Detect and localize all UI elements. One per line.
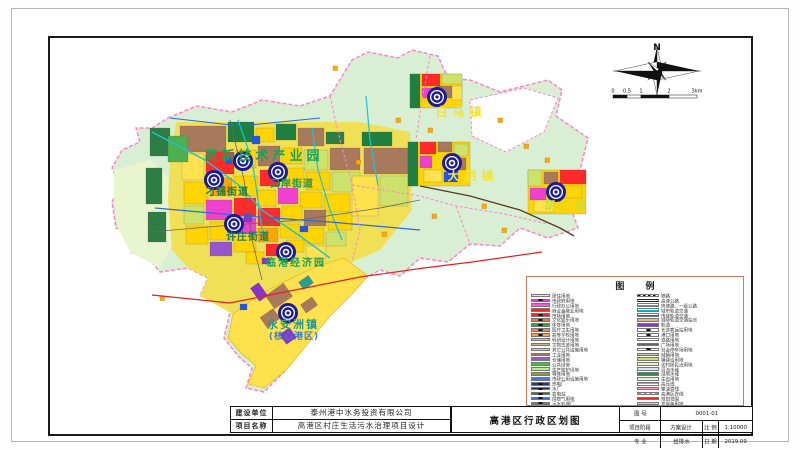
legend-swatch-icon (531, 382, 550, 386)
legend-swatch-icon (531, 343, 550, 347)
scale-label: 比 例 (703, 421, 719, 434)
map-label: 胡庄镇 (545, 198, 590, 212)
legend-swatch-icon (637, 294, 659, 298)
town-marker-icon (226, 216, 243, 233)
map-label: 白马镇 (435, 104, 486, 119)
legend-swatch-icon (531, 348, 550, 352)
specialty-label: 专 业 (620, 435, 661, 448)
map-label: (核心港区) (269, 330, 319, 342)
map-label: 高新技术产业园 (204, 148, 323, 164)
legend-left-column: 居住用地 市政府用地 行政办公用地 商业金融业用地 (529, 293, 635, 406)
town-marker-icon (206, 172, 223, 189)
legend-swatch-icon (531, 402, 550, 406)
legend-swatch-icon (637, 387, 659, 391)
scalebar-tick-label: 1 (639, 89, 642, 95)
legend-swatch-icon (531, 313, 550, 317)
legend-swatch-icon (637, 343, 659, 347)
map-label: 刁铺街道 (205, 185, 249, 198)
legend-swatch-icon (531, 294, 550, 298)
legend-swatch-icon (637, 348, 659, 352)
drawing-title: 高港区行政区划图 (452, 407, 620, 432)
legend-swatch-icon (637, 382, 659, 386)
legend-swatch-icon (637, 323, 659, 327)
legend-swatch-icon (531, 362, 550, 366)
legend-swatch-icon (637, 402, 659, 406)
legend-swatch-icon (637, 303, 659, 307)
drawing-no-label: 图 号 (620, 407, 661, 420)
project-name-value: 高港区村庄生活污水治理项目设计 (273, 420, 451, 433)
legend-swatch-icon (531, 392, 550, 396)
town-marker-icon (270, 164, 287, 181)
map-label: 大泗镇 (447, 168, 498, 183)
date-value: 2019.09 (719, 435, 752, 448)
legend-swatch-icon (637, 299, 659, 303)
legend-swatch-icon (531, 377, 550, 381)
legend-swatch-icon (637, 318, 659, 322)
specialty-value: 给排水 (661, 435, 703, 448)
legend-swatch-icon (531, 303, 550, 307)
map-label: 许庄街道 (226, 230, 270, 243)
title-block-right: 图 号 0001-01 项目阶段 方案设计 比 例 1:10000 专 业 给排… (620, 407, 752, 432)
legend-swatch-icon (637, 357, 659, 361)
scalebar-tick-label: 0.5 (623, 89, 631, 95)
legend-swatch-icon (637, 353, 659, 357)
title-block: 建设单位 泰州港中水务投资有限公司 项目名称 高港区村庄生活污水治理项目设计 高… (230, 406, 753, 433)
phase-value: 方案设计 (661, 421, 703, 434)
legend-swatch-icon (637, 367, 659, 371)
map-label: 口岸街道 (270, 177, 314, 190)
legend-swatch-icon (531, 353, 550, 357)
legend-swatch-icon (531, 299, 550, 303)
legend-swatch-icon (637, 328, 659, 332)
legend-swatch-icon (637, 313, 659, 317)
legend-swatch-icon (637, 377, 659, 381)
map-label: 永安洲镇 (266, 317, 319, 331)
scale-value: 1:10000 (719, 421, 752, 434)
legend-swatch-icon (531, 397, 550, 401)
compass-north-label: N (653, 43, 661, 53)
legend-swatch-icon (637, 362, 659, 366)
legend-swatch-icon (637, 392, 659, 396)
scalebar-tick-label: 3km (692, 89, 703, 95)
project-name-label: 项目名称 (231, 420, 273, 433)
legend-swatch-icon (637, 308, 659, 312)
legend-swatch-icon (637, 333, 659, 337)
construction-unit-label: 建设单位 (231, 407, 273, 420)
legend-swatch-icon (531, 338, 550, 342)
map-label: 临港经济园 (266, 256, 326, 269)
town-marker-icon (429, 89, 446, 106)
phase-label: 项目阶段 (620, 421, 661, 434)
legend-swatch-icon (531, 318, 550, 322)
construction-unit-value: 泰州港中水务投资有限公司 (273, 407, 451, 420)
legend-swatch-icon (637, 372, 659, 376)
legend-swatch-icon (531, 372, 550, 376)
legend-swatch-icon (531, 308, 550, 312)
legend-swatch-icon (637, 338, 659, 342)
legend-title: 图 例 (527, 277, 743, 293)
scalebar-tick-label: 2 (667, 89, 670, 95)
legend-swatch-icon (531, 367, 550, 371)
legend-swatch-icon (531, 357, 550, 361)
legend-swatch-icon (531, 333, 550, 337)
legend-swatch-icon (637, 397, 659, 401)
drawing-page: { "window": {"title": "高港区行政区划图"}, "map"… (0, 0, 800, 450)
legend-swatch-icon (531, 328, 550, 332)
scalebar-tick-label: 0 (611, 89, 614, 95)
legend-swatch-icon (531, 323, 550, 327)
legend-box: 图 例 居住用地 市政府用地 行政办公用地 (526, 276, 744, 406)
legend-right-column: 铁路 高速公路 快速路、一级公路 城市轨道交通 (635, 293, 741, 406)
title-block-left: 建设单位 泰州港中水务投资有限公司 项目名称 高港区村庄生活污水治理项目设计 (231, 407, 452, 432)
town-marker-icon (548, 184, 565, 201)
legend-swatch-icon (531, 387, 550, 391)
drawing-no-value: 0001-01 (661, 407, 752, 420)
date-label: 日 期 (703, 435, 719, 448)
